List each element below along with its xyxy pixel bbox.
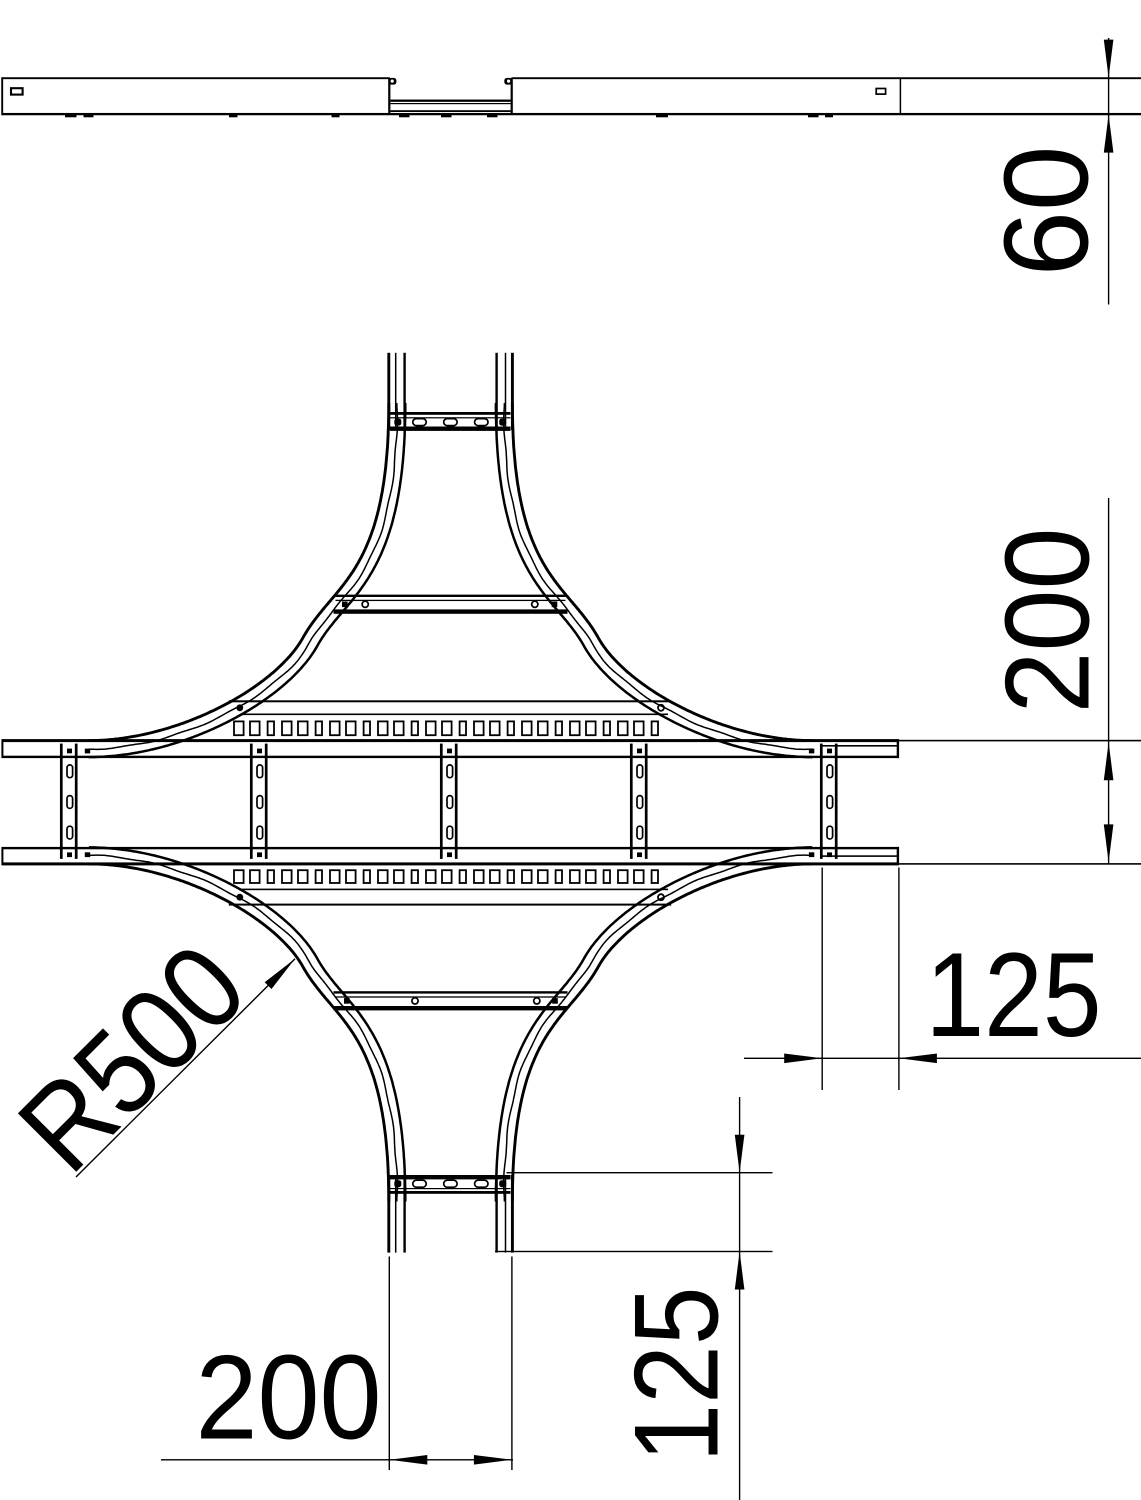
svg-text:125: 125 — [926, 928, 1102, 1062]
svg-text:125: 125 — [610, 1287, 744, 1463]
svg-text:60: 60 — [980, 146, 1114, 277]
svg-text:200: 200 — [196, 1331, 382, 1465]
svg-text:200: 200 — [981, 528, 1115, 714]
